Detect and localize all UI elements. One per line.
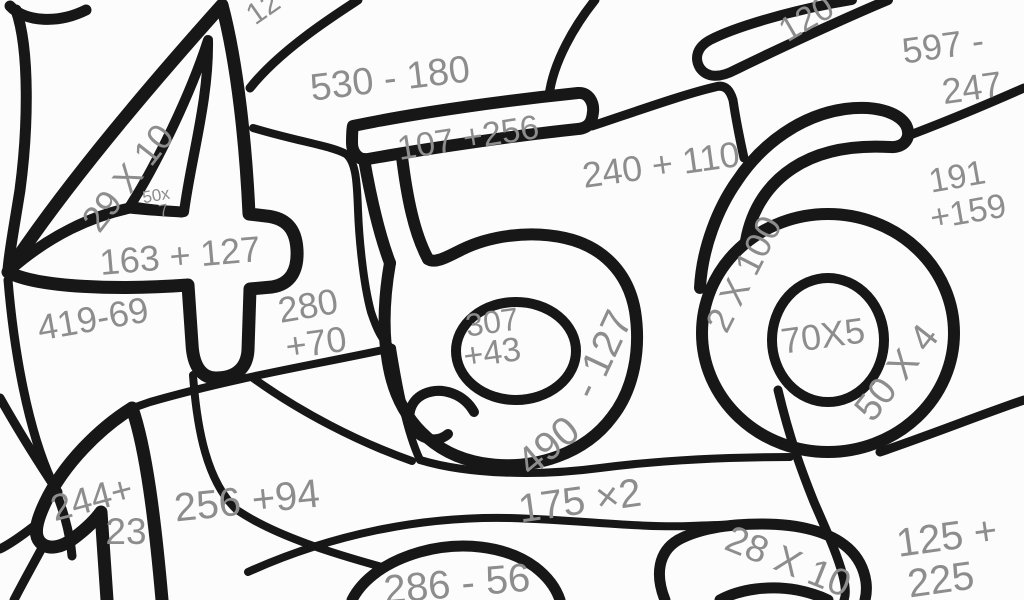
svg-text:50x: 50x	[141, 184, 172, 208]
svg-text:29 X 10: 29 X 10	[73, 116, 182, 239]
svg-text:256 +94: 256 +94	[172, 472, 322, 531]
svg-text:+70: +70	[283, 318, 349, 367]
svg-text:12: 12	[240, 0, 286, 31]
svg-text:597 -: 597 -	[899, 19, 986, 71]
svg-text:+43: +43	[461, 330, 523, 376]
svg-text:225: 225	[905, 554, 977, 600]
svg-text:247: 247	[939, 63, 1004, 112]
svg-text:419-69: 419-69	[34, 289, 152, 349]
svg-text:240 + 110: 240 + 110	[580, 133, 743, 196]
svg-text:530 - 180: 530 - 180	[308, 48, 472, 109]
svg-text:70X5: 70X5	[778, 309, 867, 361]
svg-text:163 + 127: 163 + 127	[98, 228, 262, 283]
svg-text:7: 7	[157, 200, 170, 220]
svg-text:23: 23	[105, 511, 146, 552]
